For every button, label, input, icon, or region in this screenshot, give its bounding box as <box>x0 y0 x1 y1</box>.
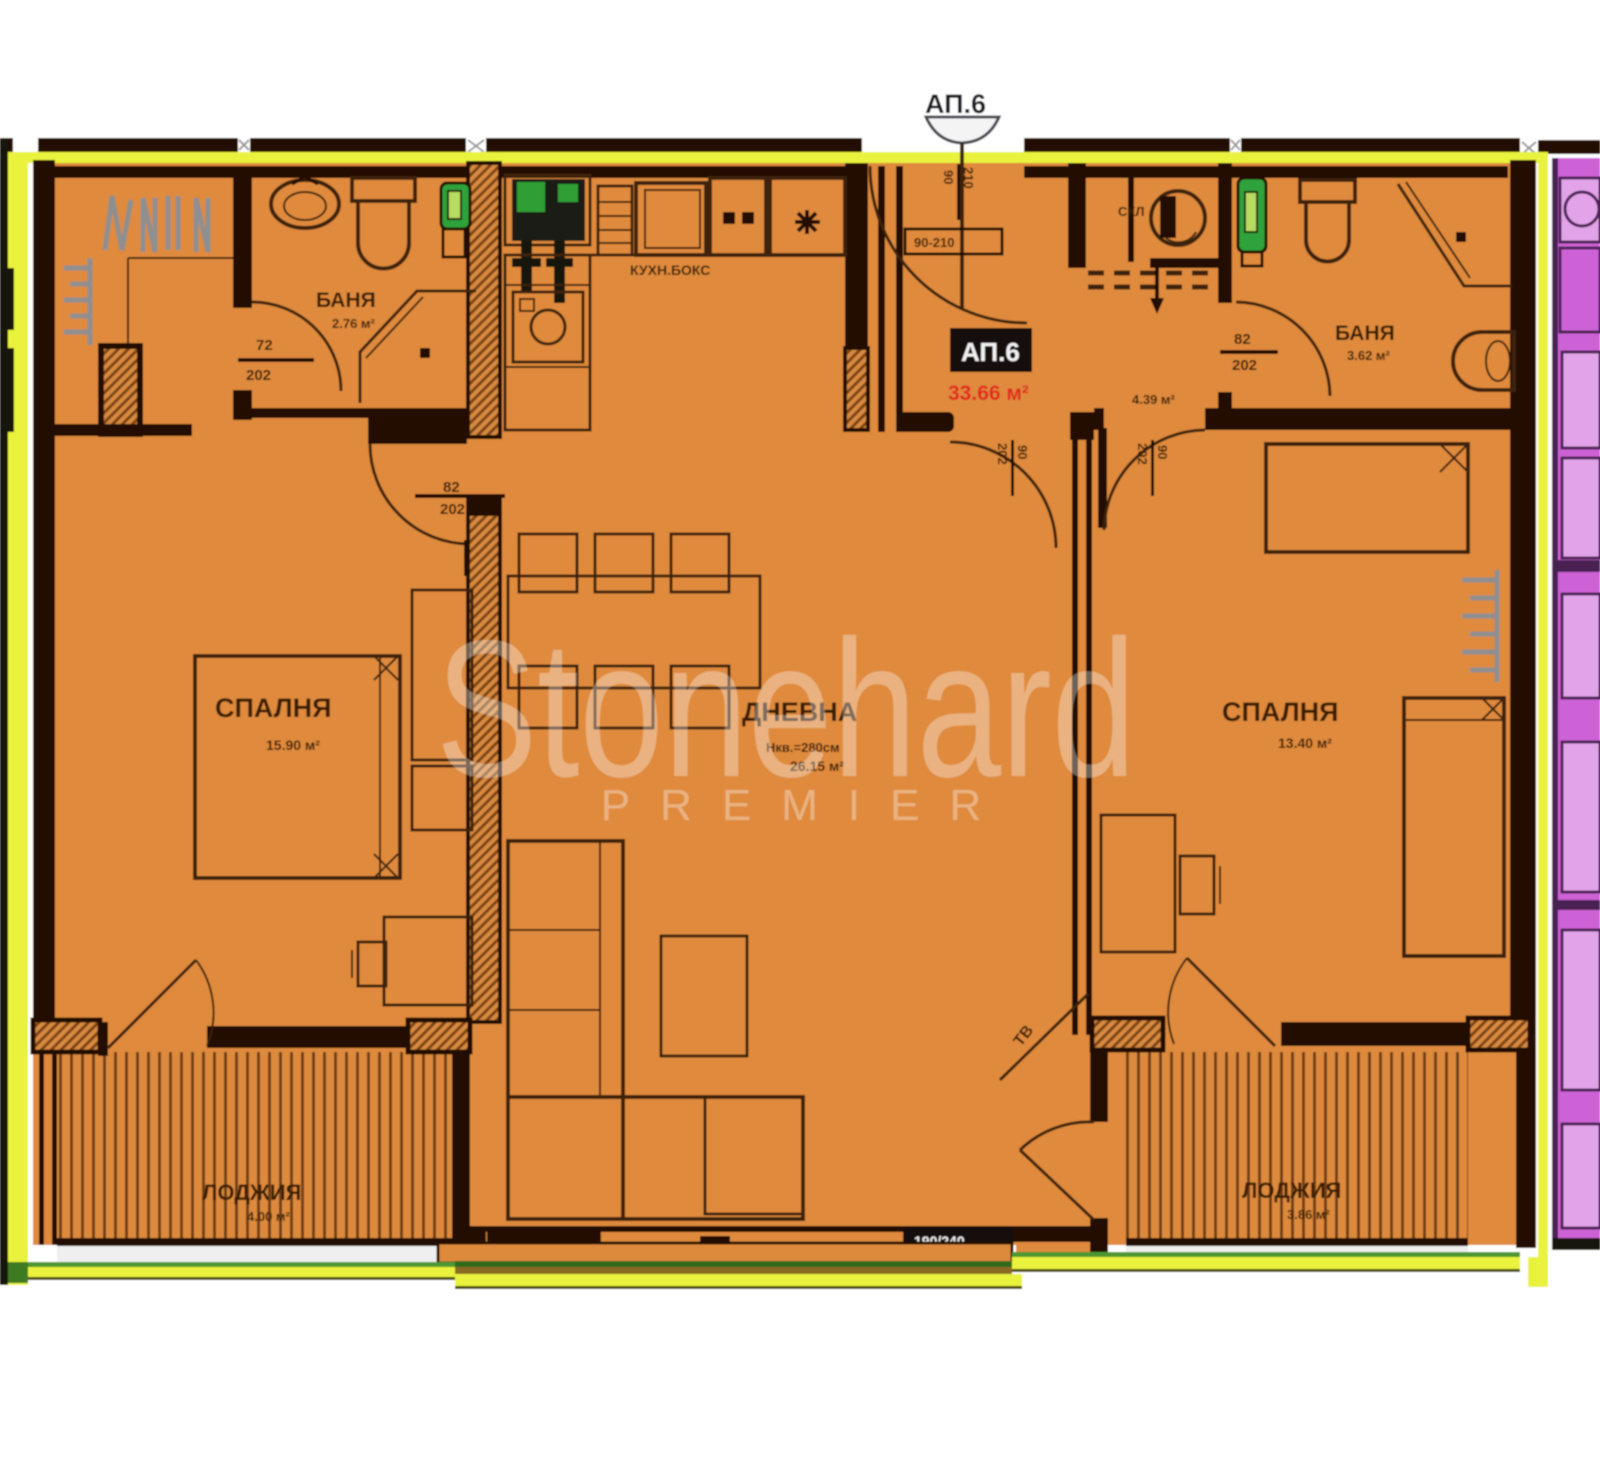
svg-text:БАНЯ: БАНЯ <box>1335 322 1395 345</box>
svg-text:СПАЛНЯ: СПАЛНЯ <box>215 693 332 723</box>
svg-text:82: 82 <box>443 479 460 496</box>
svg-text:4.00 м²: 4.00 м² <box>247 1209 291 1224</box>
svg-text:PREMIER: PREMIER <box>601 781 1011 830</box>
svg-text:АП.6: АП.6 <box>961 337 1020 367</box>
svg-text:90-210: 90-210 <box>914 235 954 250</box>
svg-text:15.90 м²: 15.90 м² <box>266 737 320 753</box>
svg-text:КУХН.БОКС: КУХН.БОКС <box>630 262 710 278</box>
svg-text:82: 82 <box>1234 331 1251 348</box>
svg-text:202: 202 <box>1232 357 1257 374</box>
svg-text:3.86 м²: 3.86 м² <box>1287 1207 1331 1222</box>
svg-text:90: 90 <box>941 170 956 184</box>
svg-text:БАНЯ: БАНЯ <box>316 289 376 312</box>
svg-text:2.76 м²: 2.76 м² <box>332 316 376 331</box>
svg-text:210: 210 <box>961 167 976 189</box>
svg-text:4.39 м²: 4.39 м² <box>1132 392 1176 407</box>
svg-text:АП.6: АП.6 <box>925 89 986 119</box>
svg-text:13.40 м²: 13.40 м² <box>1278 735 1332 751</box>
svg-text:202: 202 <box>995 443 1010 465</box>
svg-text:90: 90 <box>1155 445 1170 459</box>
svg-text:202: 202 <box>246 367 271 384</box>
svg-text:ЛОДЖИЯ: ЛОДЖИЯ <box>1242 1178 1341 1203</box>
svg-text:90: 90 <box>1015 445 1030 459</box>
svg-text:СПАЛНЯ: СПАЛНЯ <box>1222 697 1339 727</box>
svg-text:ЛОДЖИЯ: ЛОДЖИЯ <box>202 1180 301 1205</box>
svg-text:72: 72 <box>256 337 273 354</box>
svg-text:202: 202 <box>440 501 465 518</box>
svg-text:СКЛ: СКЛ <box>1118 204 1144 219</box>
svg-text:33.66 м²: 33.66 м² <box>948 382 1029 405</box>
svg-text:3.62 м²: 3.62 м² <box>1347 348 1391 363</box>
svg-text:202: 202 <box>1135 443 1150 465</box>
